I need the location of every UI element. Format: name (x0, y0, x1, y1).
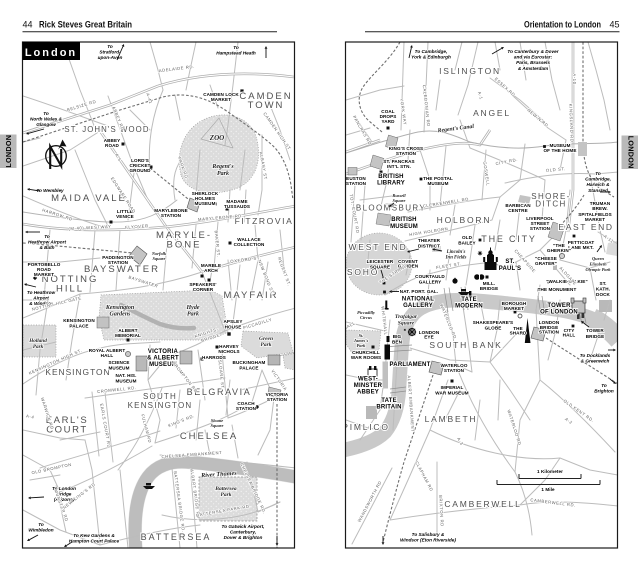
svg-text:BRITISH: BRITISH (391, 217, 416, 223)
svg-text:Park: Park (221, 492, 232, 498)
svg-text:PALACE: PALACE (239, 365, 258, 370)
svg-text:OF THE HOME: OF THE HOME (543, 148, 576, 153)
svg-text:To: To (601, 383, 607, 388)
svg-text:London: London (25, 47, 77, 59)
svg-text:SCIENCE: SCIENCE (108, 360, 129, 365)
svg-text:A-10: A-10 (572, 73, 577, 84)
svg-text:THE MONUMENT: THE MONUMENT (538, 287, 577, 292)
svg-text:KENSINGTON: KENSINGTON (63, 318, 95, 323)
svg-text:EYE: EYE (424, 335, 434, 340)
svg-text:GALLERY: GALLERY (403, 303, 433, 309)
svg-text:HALL: HALL (101, 353, 114, 358)
svg-text:TOWN: TOWN (248, 100, 285, 111)
svg-text:APSLEY: APSLEY (224, 319, 243, 324)
svg-text:Hampstead Heath: Hampstead Heath (216, 51, 256, 56)
svg-text:Park: Park (187, 312, 199, 318)
svg-text:BRIDGE: BRIDGE (586, 334, 604, 339)
svg-text:DITCH: DITCH (535, 200, 566, 209)
svg-text:STATION: STATION (539, 330, 560, 335)
svg-text:BAILEY: BAILEY (458, 240, 475, 245)
svg-text:MODERN: MODERN (455, 304, 483, 310)
svg-text:BEN: BEN (392, 339, 403, 344)
svg-text:WAR ROOMS: WAR ROOMS (351, 355, 381, 360)
svg-text:NAT. HIS.: NAT. HIS. (116, 373, 137, 378)
svg-text:KENSINGTON: KENSINGTON (45, 367, 110, 377)
svg-text:MUSEUM: MUSEUM (427, 181, 448, 186)
svg-text:STATION: STATION (530, 226, 551, 231)
svg-text:Stratford-: Stratford- (99, 50, 121, 55)
svg-text:MARKET: MARKET (211, 97, 231, 102)
svg-text:Windsor (Eton Riverside): Windsor (Eton Riverside) (400, 538, 456, 543)
svg-text:TATE: TATE (461, 297, 477, 303)
svg-text:NICHOLS: NICHOLS (218, 349, 239, 354)
svg-text:MARKET: MARKET (585, 217, 605, 222)
svg-text:NAT. PORT. GAL.: NAT. PORT. GAL. (400, 289, 438, 294)
svg-text:CAMBERWELL: CAMBERWELL (444, 499, 521, 509)
svg-text:Kensington: Kensington (105, 305, 135, 311)
svg-text:HOLBORN: HOLBORN (437, 215, 492, 225)
svg-text:BRIDGE: BRIDGE (480, 286, 498, 291)
svg-text:STATION: STATION (267, 397, 288, 402)
svg-text:ARCH: ARCH (204, 268, 218, 273)
svg-text:SOUTH BANK: SOUTH BANK (429, 340, 502, 350)
svg-text:1 Mile: 1 Mile (541, 487, 555, 492)
svg-text:GRATER": GRATER" (535, 261, 557, 266)
svg-text:LEICESTER: LEICESTER (367, 259, 394, 264)
svg-text:Paris, Brussels: Paris, Brussels (516, 60, 550, 65)
svg-text:GLOBE: GLOBE (485, 325, 502, 330)
svg-text:To Gatwick Airport,: To Gatwick Airport, (222, 524, 265, 529)
svg-text:& Greenwich: & Greenwich (581, 359, 610, 364)
svg-text:GROUND: GROUND (129, 168, 151, 173)
svg-text:and via Eurostar:: and via Eurostar: (514, 55, 553, 60)
svg-text:MINSTER: MINSTER (354, 383, 383, 389)
svg-text:VENICE: VENICE (116, 214, 134, 219)
svg-text:COURTAULD: COURTAULD (415, 274, 445, 279)
svg-text:LONDON: LONDON (627, 136, 636, 169)
svg-text:THEATER: THEATER (418, 238, 441, 243)
svg-text:BRITAIN: BRITAIN (376, 405, 401, 411)
svg-text:THE CITY: THE CITY (481, 234, 536, 244)
svg-text:BATTERSEA: BATTERSEA (141, 532, 212, 542)
svg-text:MUSEUM: MUSEUM (194, 201, 215, 206)
svg-text:ROAD: ROAD (105, 143, 120, 148)
svg-text:WEST-: WEST- (358, 377, 378, 383)
svg-text:Square: Square (153, 256, 166, 261)
svg-text:NATIONAL: NATIONAL (402, 297, 434, 303)
svg-text:Inn Fields: Inn Fields (445, 256, 467, 261)
svg-text:To Wembley: To Wembley (36, 188, 64, 193)
svg-text:MARKET: MARKET (504, 306, 524, 311)
svg-text:HILL: HILL (56, 284, 84, 295)
svg-text:Harwich &: Harwich & (587, 182, 611, 187)
svg-text:STATION: STATION (108, 260, 129, 265)
svg-text:PIMLICO: PIMLICO (342, 422, 390, 432)
svg-text:BIG: BIG (393, 334, 402, 339)
svg-text:Heathrow Airport: Heathrow Airport (28, 240, 67, 245)
svg-text:BUCKINGHAM: BUCKINGHAM (233, 360, 266, 365)
svg-text:WAR MUSEUM: WAR MUSEUM (435, 390, 468, 395)
svg-text:LAMBETH: LAMBETH (425, 414, 478, 424)
svg-text:To: To (44, 234, 50, 239)
svg-text:To Salisbury &: To Salisbury & (412, 532, 445, 537)
svg-text:ST.: ST. (505, 259, 514, 265)
svg-text:Airport: Airport (32, 296, 49, 301)
svg-text:MUSEUM: MUSEUM (108, 365, 129, 370)
svg-text:Park: Park (33, 344, 44, 350)
svg-text:Wimbledon: Wimbledon (28, 528, 53, 533)
svg-text:To Heathrow: To Heathrow (27, 290, 56, 295)
svg-text:GALLERY: GALLERY (419, 279, 441, 284)
svg-text:Rick Steves Great Britain: Rick Steves Great Britain (39, 20, 132, 30)
svg-text:& Amsterdam: & Amsterdam (518, 66, 548, 71)
svg-text:To Kew Gardens &: To Kew Gardens & (73, 533, 115, 538)
svg-text:MEMORIAL: MEMORIAL (115, 333, 141, 338)
svg-text:44: 44 (23, 20, 33, 30)
svg-text:BONE: BONE (167, 240, 202, 251)
svg-text:Cambridge,: Cambridge, (585, 177, 611, 182)
svg-text:TATE: TATE (381, 398, 397, 404)
svg-text:Gardens: Gardens (109, 312, 131, 318)
svg-text:SOUTH: SOUTH (143, 392, 177, 401)
svg-text:YARD: YARD (382, 119, 396, 124)
svg-text:Square: Square (398, 320, 415, 326)
svg-text:MUSEUM: MUSEUM (390, 224, 418, 230)
svg-text:KENSINGTON: KENSINGTON (128, 401, 193, 410)
svg-text:CENTRE: CENTRE (508, 208, 528, 213)
svg-text:To: To (233, 45, 239, 50)
svg-text:BREW.: BREW. (592, 206, 608, 211)
svg-text:GHERKIN": GHERKIN" (547, 248, 571, 253)
svg-text:TOWER: TOWER (547, 303, 571, 309)
svg-text:MARKET: MARKET (34, 272, 54, 277)
svg-text:Regent's: Regent's (211, 164, 234, 170)
svg-text:Elizabeth: Elizabeth (588, 261, 607, 266)
svg-text:STATION: STATION (346, 181, 367, 186)
svg-text:STATION: STATION (161, 213, 182, 218)
svg-text:PAUL'S: PAUL'S (499, 266, 522, 272)
svg-text:STATION: STATION (236, 406, 257, 411)
svg-text:Canterbury,: Canterbury, (230, 530, 256, 535)
svg-text:Olympic Park: Olympic Park (586, 267, 612, 272)
svg-text:Dover & Brighton: Dover & Brighton (224, 535, 263, 540)
svg-text:Square: Square (393, 198, 406, 203)
svg-text:ISLINGTON: ISLINGTON (439, 66, 501, 76)
svg-text:VICTORIA: VICTORIA (148, 349, 179, 355)
svg-text:BRITISH: BRITISH (378, 174, 403, 180)
svg-text:HOUSE: HOUSE (225, 324, 242, 329)
svg-text:CHELSEA: CHELSEA (180, 431, 238, 442)
svg-text:LONDON: LONDON (4, 135, 13, 168)
svg-text:PARLIAMENT: PARLIAMENT (390, 362, 431, 368)
svg-text:SQUARE: SQUARE (370, 264, 390, 269)
svg-text:EAST END: EAST END (558, 222, 613, 232)
svg-text:LIBRARY: LIBRARY (377, 180, 405, 186)
svg-text:OF LONDON: OF LONDON (540, 310, 578, 316)
svg-text:OLD: OLD (462, 235, 473, 240)
svg-text:ST. JOHN'S WOOD: ST. JOHN'S WOOD (64, 125, 149, 134)
svg-text:Park: Park (261, 342, 272, 348)
svg-text:Circus: Circus (360, 315, 372, 320)
svg-text:To: To (595, 171, 601, 176)
svg-text:ABBEY: ABBEY (357, 390, 379, 396)
svg-text:MUSEUM: MUSEUM (115, 378, 136, 383)
svg-text:ST.: ST. (600, 281, 607, 286)
svg-text:& Bath: & Bath (39, 245, 54, 250)
svg-text:"WALKIE-TALKIE": "WALKIE-TALKIE" (546, 279, 588, 284)
svg-text:Hyde: Hyde (186, 305, 200, 311)
svg-text:Hampton Court Palace: Hampton Court Palace (69, 539, 120, 544)
svg-text:Square: Square (211, 423, 224, 428)
svg-text:SHAKESPEARE'S: SHAKESPEARE'S (473, 320, 513, 325)
svg-text:ANGEL: ANGEL (473, 108, 511, 118)
svg-text:CORNER: CORNER (193, 287, 214, 292)
svg-text:KATH.: KATH. (596, 287, 610, 292)
svg-text:Lincoln's: Lincoln's (446, 250, 466, 255)
svg-text:To: To (38, 522, 44, 527)
svg-text:TOWER: TOWER (586, 328, 604, 333)
svg-text:MAIDA VALE: MAIDA VALE (51, 193, 127, 204)
svg-text:TUSSAUDS: TUSSAUDS (224, 204, 250, 209)
svg-text:York & Edinburgh: York & Edinburgh (411, 55, 451, 60)
svg-text:Brighton: Brighton (594, 389, 614, 394)
svg-text:Queen: Queen (592, 256, 605, 261)
svg-text:Park: Park (217, 171, 229, 177)
svg-text:SHARD: SHARD (510, 331, 527, 336)
svg-text:STATION: STATION (396, 151, 417, 156)
svg-text:To Docklands: To Docklands (580, 353, 611, 358)
svg-text:STATION: STATION (444, 368, 465, 373)
svg-text:ZOO: ZOO (209, 134, 224, 142)
svg-text:North Wales &: North Wales & (30, 117, 63, 122)
svg-text:To Cambridge,: To Cambridge, (415, 49, 448, 54)
svg-text:LANE MKT.: LANE MKT. (568, 245, 593, 250)
svg-text:IMPERIAL: IMPERIAL (441, 385, 464, 390)
svg-text:DISTRICT: DISTRICT (418, 243, 440, 248)
svg-text:45: 45 (609, 20, 619, 30)
svg-text:COLLECTION: COLLECTION (234, 242, 265, 247)
svg-text:To: To (43, 111, 49, 116)
svg-text:To: To (107, 44, 113, 49)
svg-text:HALL: HALL (563, 333, 576, 338)
svg-text:DOCK: DOCK (596, 292, 611, 297)
svg-text:Park: Park (357, 343, 367, 348)
svg-text:INT'L STN.: INT'L STN. (387, 164, 411, 169)
svg-text:WEST END: WEST END (348, 242, 407, 252)
svg-text:PALACE: PALACE (69, 323, 88, 328)
svg-text:To Canterbury & Dover: To Canterbury & Dover (507, 49, 559, 54)
svg-text:Trafalgar: Trafalgar (395, 314, 418, 320)
svg-text:Orientation to London: Orientation to London (524, 20, 601, 30)
svg-text:Glasgow: Glasgow (36, 122, 56, 127)
svg-text:1 Kilometer: 1 Kilometer (537, 469, 563, 474)
